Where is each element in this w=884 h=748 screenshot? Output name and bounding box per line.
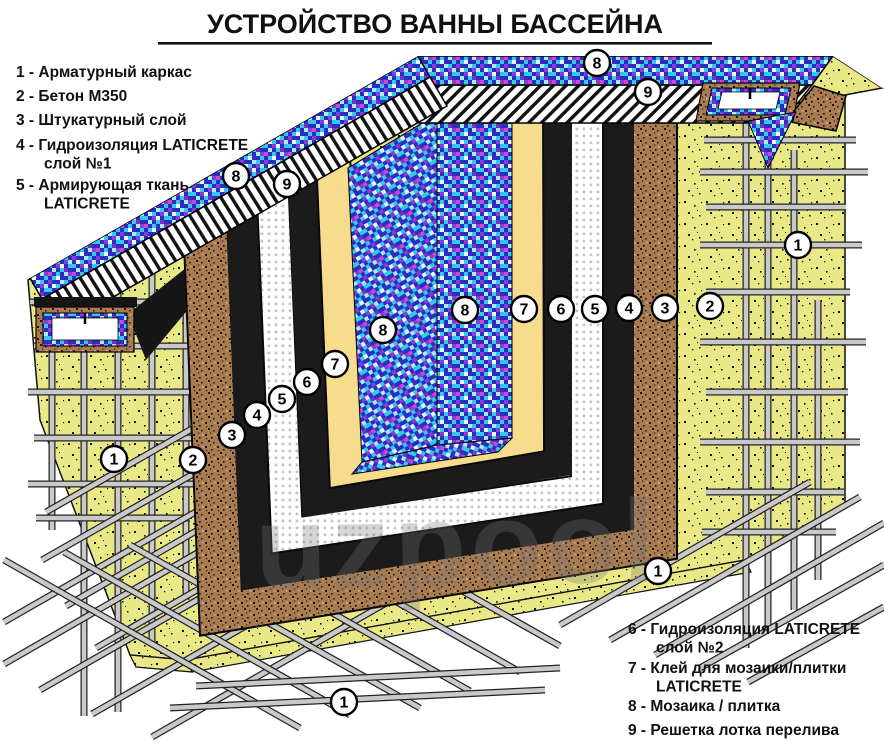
callout-2: 2 bbox=[697, 293, 723, 319]
callout-9: 9 bbox=[635, 79, 661, 105]
watermark: uzpool bbox=[254, 475, 660, 614]
callout-number: 2 bbox=[706, 299, 715, 316]
legend-right-item-7: 7 - Клей для мозаики/плитки bbox=[628, 660, 846, 677]
callout-3: 3 bbox=[219, 422, 245, 448]
callout-2: 2 bbox=[180, 447, 206, 473]
callout-number: 8 bbox=[461, 303, 470, 320]
callout-8: 8 bbox=[370, 317, 396, 343]
legend-right-item-8: 8 - Мозаика / плитка bbox=[628, 698, 781, 715]
callout-number: 4 bbox=[625, 301, 634, 318]
legend-left-item-3: 3 - Штукатурный слой bbox=[16, 112, 187, 129]
callout-number: 8 bbox=[593, 56, 602, 73]
legend-right-item-9: 9 - Решетка лотка перелива bbox=[628, 722, 839, 739]
page-title: УСТРОЙСТВО ВАННЫ БАССЕЙНА bbox=[207, 8, 663, 39]
callout-number: 1 bbox=[110, 452, 119, 469]
legend-right-item-6-line2: слой №2 bbox=[656, 640, 723, 657]
callout-6: 6 bbox=[294, 369, 320, 395]
legend-left-item-2: 2 - Бетон М350 bbox=[16, 88, 127, 105]
legend-left-item-1: 1 - Арматурный каркас bbox=[16, 64, 192, 81]
deck-mosaic-back bbox=[397, 56, 833, 85]
callout-number: 9 bbox=[283, 177, 292, 194]
callout-8: 8 bbox=[584, 50, 610, 76]
legend-left-item-4-line2: слой №1 bbox=[44, 156, 112, 173]
callout-number: 1 bbox=[654, 564, 663, 581]
callout-number: 8 bbox=[379, 323, 388, 340]
callout-number: 4 bbox=[253, 408, 262, 425]
callout-6: 6 bbox=[548, 296, 574, 322]
callout-number: 2 bbox=[189, 453, 198, 470]
pool-wall-back-mosaic bbox=[437, 114, 512, 445]
callout-number: 5 bbox=[591, 302, 600, 319]
legend-left-item-5: 5 - Армирующая ткань bbox=[16, 177, 189, 194]
callout-7: 7 bbox=[322, 351, 348, 377]
callout-number: 6 bbox=[303, 375, 312, 392]
callout-9: 9 bbox=[274, 171, 300, 197]
callout-5: 5 bbox=[269, 386, 295, 412]
callout-number: 9 bbox=[644, 85, 653, 102]
callout-7: 7 bbox=[511, 296, 537, 322]
callout-4: 4 bbox=[616, 295, 642, 321]
callout-number: 8 bbox=[232, 169, 241, 186]
callout-number: 3 bbox=[661, 301, 670, 318]
callout-number: 3 bbox=[228, 428, 237, 445]
callout-number: 7 bbox=[331, 357, 340, 374]
callout-4: 4 bbox=[244, 402, 270, 428]
callout-number: 7 bbox=[520, 302, 529, 319]
callout-number: 1 bbox=[340, 695, 349, 712]
callout-1: 1 bbox=[331, 689, 357, 715]
callout-8: 8 bbox=[452, 297, 478, 323]
title-underline bbox=[158, 42, 712, 45]
pool-interior bbox=[348, 114, 512, 474]
callout-number: 1 bbox=[794, 238, 803, 255]
legend-left-item-5-line2: LATICRETE bbox=[44, 196, 130, 213]
callout-1: 1 bbox=[101, 446, 127, 472]
callout-8: 8 bbox=[223, 163, 249, 189]
pool-wall-left-mosaic bbox=[348, 114, 437, 462]
overflow-channel-left bbox=[34, 297, 137, 352]
pool-construction-diagram-page: uzpool УСТРОЙСТВО ВАННЫ БАССЕЙНА 1 - Арм… bbox=[0, 0, 884, 748]
legend-right-item-6: 6 - Гидроизоляция LATICRETE bbox=[628, 621, 860, 638]
callout-3: 3 bbox=[652, 295, 678, 321]
callout-5: 5 bbox=[582, 296, 608, 322]
callout-1: 1 bbox=[785, 232, 811, 258]
callout-number: 6 bbox=[557, 302, 566, 319]
legend-left-item-4: 4 - Гидроизоляция LATICRETE bbox=[16, 137, 248, 154]
callout-1: 1 bbox=[645, 558, 671, 584]
legend-right-item-7-line2: LATICRETE bbox=[656, 679, 742, 696]
pool-construction-diagram: uzpool УСТРОЙСТВО ВАННЫ БАССЕЙНА 1 - Арм… bbox=[0, 0, 884, 748]
callout-number: 5 bbox=[278, 392, 287, 409]
